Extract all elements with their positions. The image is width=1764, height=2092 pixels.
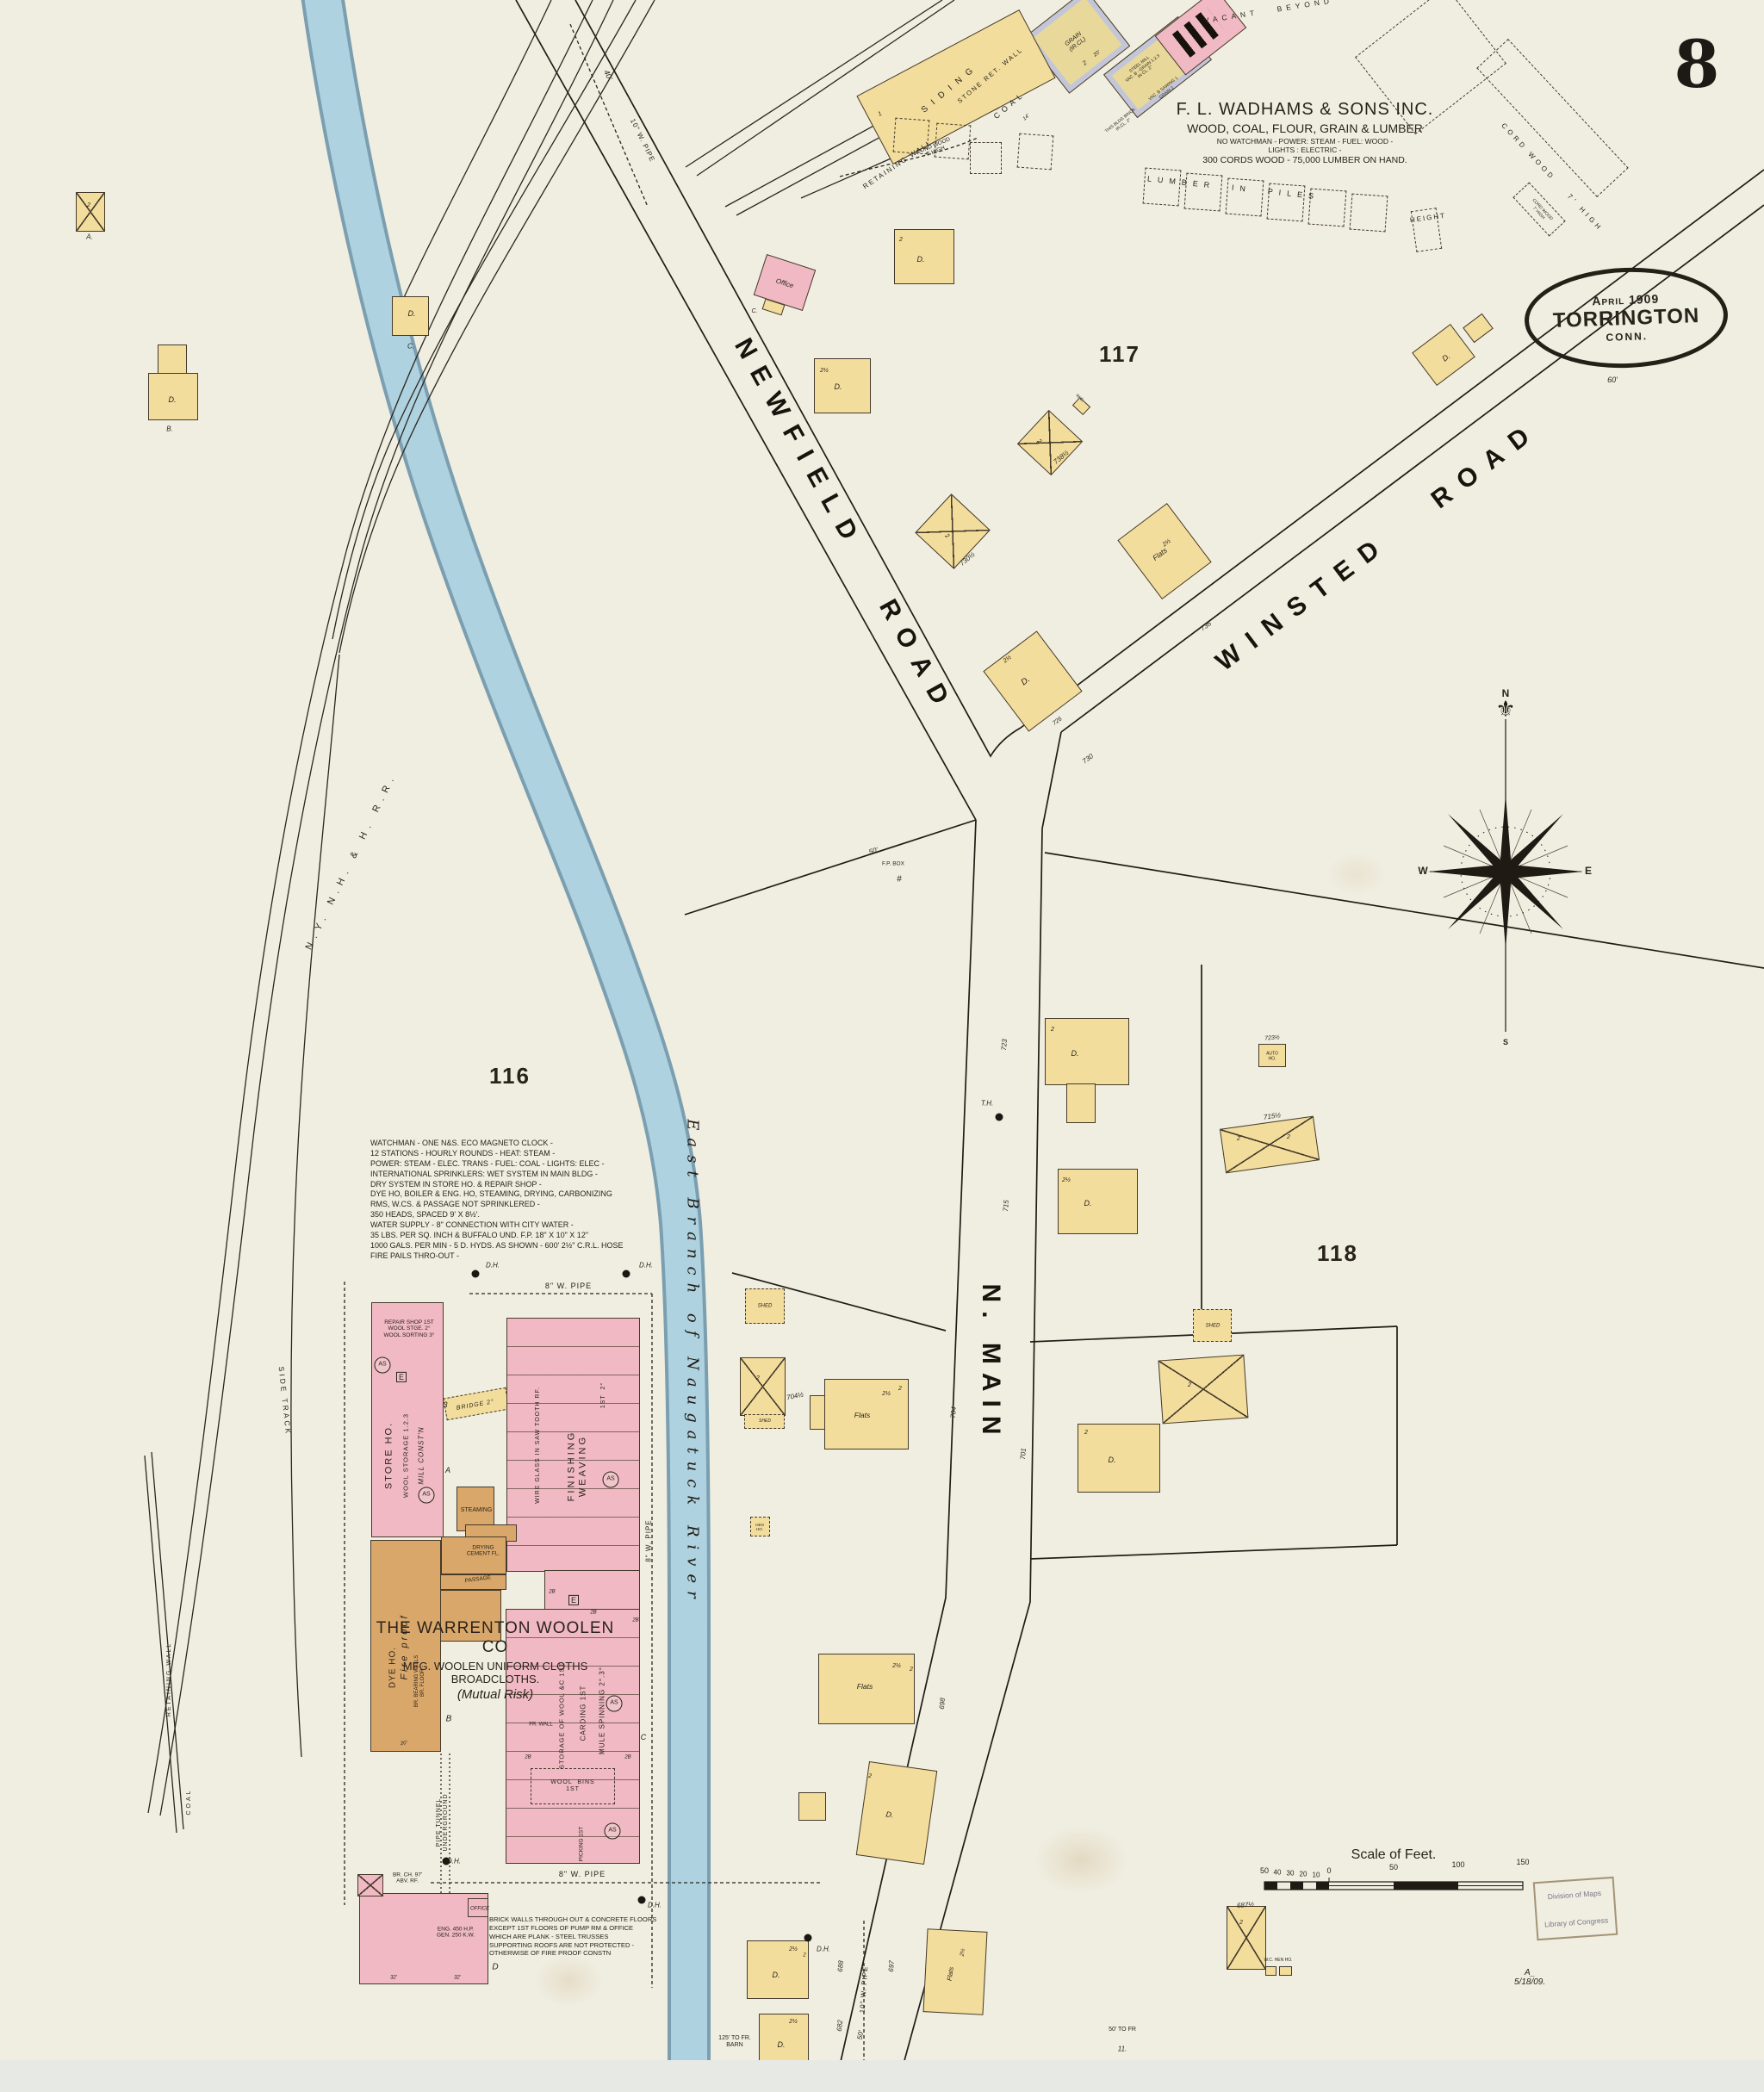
map-label: 116 xyxy=(489,1064,531,1089)
factory-name: THE WARRENTON WOOLEN CO MFG. WOOLEN UNIF… xyxy=(362,1619,629,1702)
factory-notes: WATCHMAN - ONE N&S. ECO MAGNETO CLOCK - … xyxy=(370,1139,672,1262)
map-label: WOOL STORAGE 1.2.3 xyxy=(403,1413,411,1498)
map-label: D. xyxy=(773,1971,780,1979)
map-label: BR. CH. 97' ABV. RF. xyxy=(393,1872,422,1885)
map-label: 723 xyxy=(1000,1039,1009,1051)
map-label: AUTO HO. xyxy=(1266,1052,1278,1061)
wadhams-line3: NO WATCHMAN - POWER: STEAM - FUEL: WOOD … xyxy=(1167,137,1443,146)
map-label: 8" W. PIPE xyxy=(559,1870,606,1878)
map-label: Flats xyxy=(1152,547,1170,563)
map-label: NEWFIELD ROAD xyxy=(728,333,960,721)
map-label: 2 xyxy=(1035,438,1042,445)
map-label: 10" W. PIPE xyxy=(629,117,656,163)
map-label: 2 xyxy=(943,533,950,540)
map-label: 2 xyxy=(1237,1136,1240,1143)
map-label: 3 xyxy=(443,1400,447,1409)
wadhams-line2: WOOD, COAL, FLOUR, GRAIN & LUMBER xyxy=(1167,121,1443,135)
map-label: 20' xyxy=(1093,50,1102,59)
map-label: S xyxy=(1503,1038,1508,1046)
map-label: 2½ xyxy=(882,1391,891,1398)
map-label: 0 xyxy=(1326,1866,1331,1875)
map-label: 688 xyxy=(836,1960,845,1972)
map-label: HEIGHT xyxy=(1409,212,1446,225)
map-label: 2½ xyxy=(789,2019,798,2026)
map-label: D. xyxy=(1440,351,1451,363)
map-label: D. xyxy=(1084,1199,1092,1207)
map-label: W.C. HEN HO. xyxy=(1264,1959,1292,1964)
map-label: 40' xyxy=(602,68,614,81)
map-label: B. xyxy=(166,425,173,432)
map-label: N xyxy=(1502,688,1510,700)
map-label: SHED xyxy=(758,1304,773,1310)
map-label: 701 xyxy=(1019,1448,1028,1460)
map-label: W xyxy=(1418,866,1427,878)
wadhams-line5: 300 CORDS WOOD - 75,000 LUMBER ON HAND. xyxy=(1167,155,1443,165)
library-stamp-line1: Division of Maps xyxy=(1547,1889,1601,1901)
map-label: 2 xyxy=(898,1386,902,1393)
map-label: E xyxy=(1585,866,1592,878)
map-label: MILL CONST'N xyxy=(417,1426,425,1484)
map-label: 2½ xyxy=(1003,655,1014,665)
map-label: 50 xyxy=(1389,1863,1398,1872)
map-label: 14' xyxy=(1022,114,1031,122)
map-label: D. xyxy=(408,309,416,318)
map-label: 715½ xyxy=(1263,1111,1281,1121)
map-label: 2B xyxy=(624,1755,630,1761)
map-label: D. xyxy=(1020,674,1033,687)
map-label: 738½ xyxy=(1052,449,1070,466)
map-label: AS xyxy=(605,1823,621,1840)
map-label: Flats xyxy=(857,1683,873,1692)
handwritten-initial: A_ xyxy=(1514,1968,1545,1977)
map-label: 704½ xyxy=(786,1390,804,1401)
map-label: 10 xyxy=(1313,1871,1320,1878)
hydrant-dot xyxy=(443,1858,450,1865)
hydrant-dot xyxy=(623,1270,630,1278)
handwritten-note: A_ 5/18/09. xyxy=(1514,1968,1545,1987)
map-label: AS xyxy=(603,1472,619,1488)
map-label: Office xyxy=(775,276,795,289)
map-label: REPAIR SHOP 1ST WOOL STGE. 2° WOOL SORTI… xyxy=(384,1319,435,1338)
factory-name-line4: (Mutual Risk) xyxy=(362,1687,629,1702)
map-label: 50' xyxy=(868,846,879,856)
map-label: 687½ xyxy=(1237,1901,1255,1910)
map-label: BRIDGE 2° xyxy=(456,1399,494,1412)
map-label: STEEL MILL VAC. B - GRAIN 1.2.3 IN CL. 2… xyxy=(1122,50,1165,87)
map-label: 2 xyxy=(803,1953,805,1959)
map-label: 117 xyxy=(1099,342,1140,368)
factory-name-line1: THE WARRENTON WOOLEN CO xyxy=(362,1619,629,1657)
map-label: THIS BLDG BRICK IR.CL. 2° xyxy=(1105,108,1140,138)
map-label: WINSTED ROAD xyxy=(1210,414,1545,677)
map-label: 723½ xyxy=(1264,1034,1280,1042)
stamp-city: TORRINGTON xyxy=(1552,304,1699,333)
map-label: STORE HO. xyxy=(384,1422,395,1489)
handwritten-date: 5/18/09. xyxy=(1514,1977,1545,1987)
map-label: 30 xyxy=(1287,1869,1295,1877)
map-label: 2 xyxy=(1188,1382,1191,1389)
map-label: Flats xyxy=(947,1966,956,1981)
map-label: PASSAGE xyxy=(464,1574,491,1585)
map-label: WOOL BINS 1ST xyxy=(550,1779,594,1793)
map-label: 730 xyxy=(1081,752,1095,765)
map-label: 2 xyxy=(1287,1134,1290,1141)
map-label: 8" W. PIPE xyxy=(644,1519,652,1561)
map-label: 20 xyxy=(1300,1870,1307,1878)
map-label: HEN HO. xyxy=(755,1523,764,1531)
map-label: PIPE TUNNEL UNDERGROUND xyxy=(436,1794,450,1852)
map-label: D. xyxy=(917,255,925,264)
map-label: 60' xyxy=(1607,376,1618,384)
wadhams-caption: F. L. WADHAMS & SONS INC. WOOD, COAL, FL… xyxy=(1167,100,1443,165)
map-label: D. xyxy=(169,395,177,404)
map-label: 2½ xyxy=(1062,1177,1071,1184)
factory-name-line2: MFG. WOOLEN UNIFORM CLOTHS xyxy=(362,1660,629,1673)
map-label: 32' xyxy=(454,1976,461,1982)
map-label: 736 xyxy=(1199,619,1213,632)
map-label: AS xyxy=(419,1487,435,1504)
map-label: GRAIN (IR.CL) xyxy=(1064,31,1088,53)
map-label: 730½ xyxy=(958,550,976,568)
map-label: D xyxy=(492,1962,498,1971)
map-label: D. xyxy=(778,2040,786,2049)
hydrant-dot xyxy=(804,1934,812,1942)
map-label: 2½ xyxy=(820,368,829,375)
map-label: 50 xyxy=(1260,1866,1269,1875)
map-label: 726 xyxy=(1052,716,1064,727)
map-label: D. xyxy=(835,382,842,391)
map-label: 2B xyxy=(549,1590,555,1596)
map-label: 2B xyxy=(632,1618,638,1624)
map-label: 715 xyxy=(1002,1200,1010,1212)
map-label: N.Y. N.H. & H. R.R. xyxy=(303,771,399,952)
map-label: W.C. xyxy=(1074,394,1084,404)
map-label: SHED xyxy=(759,1419,771,1425)
map-label: A xyxy=(445,1466,450,1474)
map-label: 10" W. PIPE xyxy=(859,1965,870,2013)
map-label: WIRE GLASS IN SAW TOOTH RF. xyxy=(535,1387,542,1504)
map-label: 2 xyxy=(1051,1027,1054,1034)
scan-edge-strip xyxy=(0,2060,1764,2092)
map-label: E xyxy=(568,1595,579,1605)
map-label: East Branch of Naugatuck River xyxy=(683,1119,701,1605)
map-label: 2 xyxy=(899,237,903,244)
map-label: 150 xyxy=(1516,1858,1529,1866)
map-label: 20' xyxy=(401,1741,408,1747)
map-label: FINISHING WEAVING xyxy=(566,1431,587,1502)
map-label: 2½ xyxy=(789,1946,798,1953)
map-label: N. MAIN xyxy=(976,1284,1005,1443)
map-label: 704 xyxy=(949,1406,958,1418)
map-label: 40 xyxy=(1274,1868,1282,1876)
sheet-number: 8 xyxy=(1669,26,1724,102)
map-label: 2 xyxy=(910,1667,913,1673)
map-label: 682 xyxy=(835,2020,844,2032)
map-label: 125' TO FR. BARN xyxy=(718,2035,751,2049)
map-label: RETAINING WALL xyxy=(166,1642,173,1716)
library-stamp: Division of Maps Library of Congress xyxy=(1533,1877,1618,1940)
map-label: 2B xyxy=(590,1611,596,1617)
map-label: 2 xyxy=(87,202,90,209)
map-label: C. xyxy=(752,308,758,315)
map-label: A. xyxy=(86,233,93,240)
map-label: 8" W. PIPE xyxy=(545,1282,592,1290)
map-label: C. xyxy=(407,342,414,350)
map-label: D. xyxy=(1071,1049,1079,1058)
map-label: D.H. xyxy=(486,1261,500,1269)
map-label: CORD WOOD 7' HIGH xyxy=(916,136,953,161)
map-label: LUMBER IN PILES xyxy=(1146,174,1320,201)
map-label: 2½ xyxy=(892,1663,901,1670)
map-label: D.H. xyxy=(639,1261,653,1269)
map-label: 11. xyxy=(1118,2045,1127,2052)
map-label: D.H. xyxy=(817,1945,830,1952)
map-label: D.H. xyxy=(648,1901,661,1909)
map-label: 1 xyxy=(877,111,883,119)
map-label: F.P. BOX xyxy=(882,860,904,866)
map-label: VACANT BEYOND xyxy=(1203,0,1333,26)
map-label: COAL xyxy=(992,90,1028,121)
map-label: 50' xyxy=(856,2030,866,2040)
map-label: FR. WALL xyxy=(529,1723,552,1729)
map-label: 2B xyxy=(525,1755,531,1761)
map-label: 697 xyxy=(887,1960,896,1972)
map-label: # xyxy=(897,874,902,884)
factory-name-line3: BROADCLOTHS. xyxy=(362,1673,629,1685)
map-label: E xyxy=(396,1372,407,1382)
map-label: AS xyxy=(375,1357,391,1374)
map-label: PICKING 1ST xyxy=(578,1827,584,1861)
map-label: 2 xyxy=(868,1773,873,1780)
map-label: C xyxy=(641,1733,647,1741)
map-label: SHED xyxy=(1206,1324,1221,1330)
scale-title: Scale of Feet. xyxy=(1316,1847,1471,1863)
map-label: Flats xyxy=(854,1412,870,1420)
map-label: 50' TO FR xyxy=(1109,2027,1136,2033)
library-stamp-line2: Library of Congress xyxy=(1544,1915,1609,1928)
hydrant-dot xyxy=(472,1270,480,1278)
map-label: 32' xyxy=(390,1976,397,1982)
labels-layer: NEWFIELD ROADWINSTED ROADN. MAINEast Bra… xyxy=(0,0,1764,2092)
sanborn-map-page: ⚜ NEWFIELD ROADWINSTED ROADN. MAINEast B… xyxy=(0,0,1764,2092)
map-label: B xyxy=(446,1714,452,1723)
map-label: T.H. xyxy=(981,1099,993,1107)
map-label: CORD WOOD 7' HIGH xyxy=(1527,198,1553,225)
construction-note: BRICK WALLS THROUGH OUT & CONCRETE FLOOR… xyxy=(489,1915,679,1958)
stamp-state: CONN. xyxy=(1606,330,1648,344)
wadhams-name: F. L. WADHAMS & SONS INC. xyxy=(1167,100,1443,120)
hydrant-dot xyxy=(996,1114,1003,1121)
map-label: DRYING CEMENT FL. xyxy=(467,1545,500,1558)
map-label: SIDE TRACK xyxy=(276,1366,292,1436)
map-label: 2 xyxy=(756,1375,760,1382)
map-label: 2 xyxy=(1239,1920,1243,1927)
wadhams-line4: LIGHTS : ELECTRIC - xyxy=(1167,146,1443,154)
map-label: 698 xyxy=(938,1698,947,1710)
map-label: OFFICE xyxy=(470,1907,489,1913)
map-label: D. xyxy=(1109,1456,1116,1464)
map-label: 2½ xyxy=(960,1948,967,1957)
map-label: 118 xyxy=(1317,1241,1358,1267)
hydrant-dot xyxy=(638,1896,646,1904)
map-label: 1ST 2° xyxy=(600,1382,607,1408)
map-label: STEAMING xyxy=(461,1507,493,1514)
map-label: COAL xyxy=(186,1788,193,1815)
map-label: ENG. 450 H.P. GEN. 250 K.W. xyxy=(437,1927,475,1940)
map-label: 2 xyxy=(1084,1430,1088,1437)
map-label: D. xyxy=(885,1810,894,1819)
map-label: 2 xyxy=(1082,60,1089,68)
